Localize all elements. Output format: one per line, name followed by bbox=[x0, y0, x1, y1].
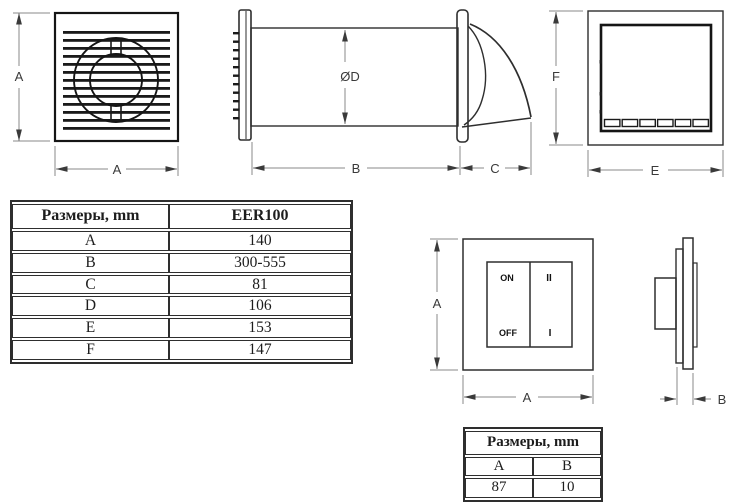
dim-cell: F bbox=[12, 340, 169, 360]
dim-label-diameter: ØD bbox=[340, 69, 360, 84]
louver-line bbox=[63, 31, 170, 34]
table-row: B 300-555 bbox=[12, 253, 351, 273]
dim-switch-a-horizontal: A bbox=[463, 375, 593, 405]
dim-back-e: E bbox=[588, 150, 723, 178]
table-row: E 153 bbox=[12, 318, 351, 338]
fan-dimensions-sheet: A A bbox=[0, 0, 743, 503]
switch-mechanism-box bbox=[655, 278, 676, 329]
switch-dimensions-table: Размеры, mm A B 87 10 bbox=[463, 427, 603, 502]
dim-back-f: F bbox=[549, 11, 583, 145]
value-cell: 106 bbox=[169, 296, 351, 316]
vent-slot bbox=[658, 120, 673, 127]
dim-label-c: C bbox=[490, 161, 499, 176]
switch-speed2-label: II bbox=[546, 273, 552, 284]
hood-bottom-line bbox=[462, 118, 531, 127]
switch-rocker-profile bbox=[693, 263, 697, 347]
louver-line bbox=[63, 39, 170, 42]
main-dimensions-table: Размеры, mm EER100 A 140 B 300-555 C 81 … bbox=[10, 200, 353, 364]
front-view-grille: A A bbox=[13, 13, 178, 177]
plate-vent-slots bbox=[605, 120, 709, 127]
value-cell: 140 bbox=[169, 231, 351, 251]
outdoor-hood bbox=[457, 10, 531, 142]
side-view-duct: ØD B C bbox=[233, 10, 531, 176]
switch-off-label: OFF bbox=[499, 328, 517, 338]
louver-line bbox=[63, 127, 170, 130]
louver-line bbox=[63, 111, 170, 114]
table-row: A 140 bbox=[12, 231, 351, 251]
dim-label-switch-a-vertical: A bbox=[433, 296, 442, 311]
main-table-header-model: EER100 bbox=[169, 204, 351, 229]
switch-speed1-label: I bbox=[549, 328, 552, 339]
dim-label-switch-a-horizontal: A bbox=[523, 390, 532, 405]
grille-edge-plate bbox=[239, 10, 251, 140]
louver-line bbox=[63, 79, 170, 82]
switch-side-view: B bbox=[655, 238, 726, 407]
vent-slot bbox=[622, 120, 637, 127]
table-row: C 81 bbox=[12, 275, 351, 295]
dim-side-b: B bbox=[252, 142, 460, 176]
dim-cell: A bbox=[465, 457, 533, 476]
vent-slot bbox=[640, 120, 655, 127]
switch-plate bbox=[463, 239, 593, 370]
switch-front-view: ON OFF II I A A bbox=[430, 239, 593, 405]
dim-label-b: B bbox=[352, 161, 361, 176]
grille-louvers bbox=[63, 31, 170, 130]
table-row: F 147 bbox=[12, 340, 351, 360]
value-cell: 87 bbox=[465, 478, 533, 497]
value-cell: 81 bbox=[169, 275, 351, 295]
switch-on-label: ON bbox=[500, 273, 514, 283]
dim-label-switch-side-b: B bbox=[718, 392, 727, 407]
switch-table-title: Размеры, mm bbox=[465, 431, 601, 455]
dim-label-front-a-horizontal: A bbox=[113, 162, 122, 177]
vent-slot bbox=[605, 120, 620, 127]
dim-side-diameter: ØD bbox=[340, 30, 360, 124]
table-header-row: Размеры, mm bbox=[465, 431, 601, 455]
vent-slot bbox=[675, 120, 690, 127]
louver-line bbox=[63, 87, 170, 90]
dim-cell: C bbox=[12, 275, 169, 295]
dim-front-a-horizontal: A bbox=[55, 146, 178, 177]
table-row: D 106 bbox=[12, 296, 351, 316]
dim-cell: D bbox=[12, 296, 169, 316]
dim-cell: B bbox=[533, 457, 601, 476]
table-header-row: Размеры, mm EER100 bbox=[12, 204, 351, 229]
dim-front-a-vertical: A bbox=[13, 13, 50, 141]
switch-mid-plate bbox=[676, 249, 683, 363]
dim-label-f: F bbox=[552, 69, 560, 84]
louver-line bbox=[63, 71, 170, 74]
dim-cell: B bbox=[12, 253, 169, 273]
back-view-plate: F E bbox=[549, 11, 723, 178]
dim-cell: A bbox=[12, 231, 169, 251]
dim-label-front-a-vertical: A bbox=[15, 69, 24, 84]
switch-face-plate bbox=[683, 238, 693, 369]
value-cell: 147 bbox=[169, 340, 351, 360]
louver-line bbox=[63, 55, 170, 58]
value-cell: 153 bbox=[169, 318, 351, 338]
louver-line bbox=[63, 47, 170, 50]
dim-switch-a-vertical: A bbox=[430, 239, 458, 370]
hood-outer-curve bbox=[470, 24, 531, 117]
dim-side-c: C bbox=[461, 122, 531, 176]
dim-switch-side-b: B bbox=[660, 367, 726, 407]
vent-slot bbox=[693, 120, 708, 127]
plate-inner-frame bbox=[601, 25, 711, 131]
main-table-header-dims: Размеры, mm bbox=[12, 204, 169, 229]
value-cell: 300-555 bbox=[169, 253, 351, 273]
table-row: A B bbox=[465, 457, 601, 476]
dim-cell: E bbox=[12, 318, 169, 338]
dim-label-e: E bbox=[651, 163, 660, 178]
value-cell: 10 bbox=[533, 478, 601, 497]
table-row: 87 10 bbox=[465, 478, 601, 497]
